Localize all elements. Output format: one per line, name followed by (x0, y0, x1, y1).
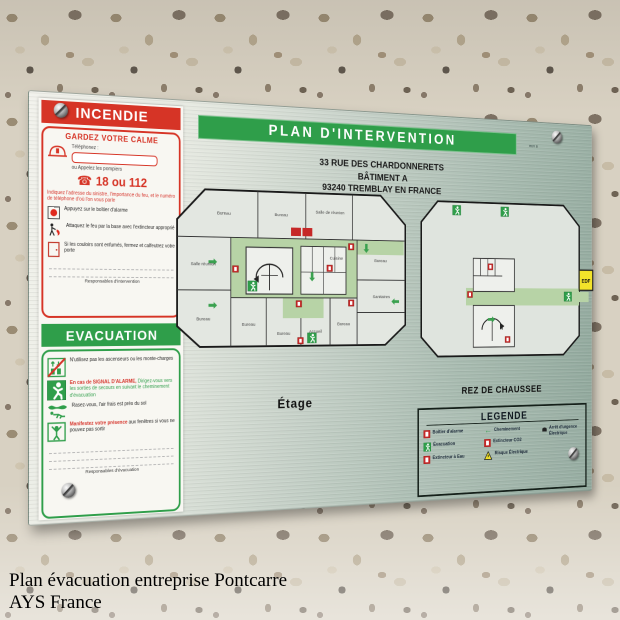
legend-label: Boîtier d'alarme (432, 429, 463, 436)
incendie-step-1: Appuyez sur le boîtier d'alarme (64, 206, 128, 214)
plate-wrap: PLAN D'INTERVENTION REV B 33 RUE DES CHA… (28, 90, 592, 526)
room-label: Bureau (196, 316, 210, 322)
no-elevator-icon (47, 357, 66, 377)
crawl-smoke-icon (47, 403, 68, 419)
evacuation-header-label: EVACUATION (66, 327, 158, 343)
room-label: Bureau (374, 258, 387, 264)
plate-revision: REV B (529, 144, 537, 148)
electric-risk-icon (485, 451, 493, 460)
legend-label: Arrêt d'urgence Électrique (549, 424, 581, 436)
photo-scene: PLAN D'INTERVENTION REV B 33 RUE DES CHA… (0, 0, 620, 620)
floor-label-etage: Étage (172, 393, 410, 415)
plan-title: PLAN D'INTERVENTION (269, 122, 457, 149)
window-person-icon (47, 422, 66, 443)
room-label: Bureau (217, 211, 231, 217)
extinguisher-icon (47, 222, 62, 238)
plan-title-bar: PLAN D'INTERVENTION (198, 115, 516, 155)
incendie-step-3: Si les couloirs sont enfumés, fermez et … (64, 241, 175, 255)
floor-plan-rdc: EDF (415, 195, 594, 383)
evacuation-header: EVACUATION (41, 323, 180, 347)
firefighter-helmet-icon (47, 143, 68, 160)
caption-line1: Plan évacuation entreprise Pontcarre (9, 570, 287, 592)
evacuation-step-1: N'utilisez pas les ascenseurs ou les mon… (70, 356, 173, 364)
safety-panel: INCENDIE GARDEZ VOTRE CALME Téléphonez : (39, 98, 184, 521)
co2-extinguisher-icon (485, 439, 492, 447)
caption: Plan évacuation entreprise Pontcarre AYS… (9, 570, 287, 615)
incendie-footer: Responsables d'intervention (47, 279, 175, 285)
alarm-box-icon (423, 430, 430, 438)
alarm-button-icon (47, 205, 60, 219)
room-label: Bureau (337, 322, 350, 328)
fire-notice: Indiquez l'adresse du sinistre, l'import… (47, 189, 175, 206)
edf-label: EDF (582, 278, 591, 284)
water-extinguisher-icon (423, 456, 430, 464)
legend-label: Extincteur à Eau (432, 454, 464, 461)
door-icon (47, 241, 60, 257)
incendie-step-2: Attaquez le feu par la base avec l'extin… (66, 222, 174, 231)
legend-label: Évacuation (433, 441, 455, 448)
intervention-plate: PLAN D'INTERVENTION REV B 33 RUE DES CHA… (28, 90, 592, 526)
incendie-box: GARDEZ VOTRE CALME Téléphonez : ou Appel… (41, 126, 180, 318)
room-label: Bureau (275, 212, 289, 218)
evacuation-step-3: Rasez-vous, l'air frais est près du sol (72, 401, 147, 409)
legend-box: LEGENDE Boîtier d'alarme Évacuation (417, 403, 586, 497)
room-label: Cuisine (330, 256, 343, 262)
screw-top-right (552, 130, 562, 143)
room-label: Salle de réunion (316, 210, 345, 216)
legend-label: Extincteur CO2 (493, 438, 521, 445)
phone-icon: ☎ (77, 174, 92, 187)
phone-number-field (72, 152, 158, 166)
exit-runner-icon (47, 380, 66, 400)
evacuation-icon (423, 442, 431, 451)
legend-label: Cheminement (494, 427, 520, 434)
path-arrow-icon: ← (485, 428, 492, 435)
incendie-header-label: INCENDIE (76, 105, 149, 126)
room-label: Salle réunion (191, 261, 216, 267)
caption-line2: AYS France (9, 592, 287, 614)
room-label: Accueil (309, 329, 322, 335)
legend-label: Risque Électrique (495, 449, 528, 456)
room-label: Sanitaires (373, 294, 391, 300)
room-label: Bureau (277, 331, 290, 337)
intervention-names-lines (49, 261, 174, 278)
screw-top-left (54, 103, 68, 119)
room-label: Bureau (242, 322, 256, 328)
emergency-numbers: 18 ou 112 (96, 174, 147, 190)
evacuation-names-lines (49, 441, 174, 470)
floor-label-rdc: REZ DE CHAUSSEE (414, 383, 586, 398)
floor-plan-etage: Bureau Bureau Salle de réunion Bureau Sa… (172, 182, 410, 385)
emergency-stop-icon (542, 425, 547, 433)
